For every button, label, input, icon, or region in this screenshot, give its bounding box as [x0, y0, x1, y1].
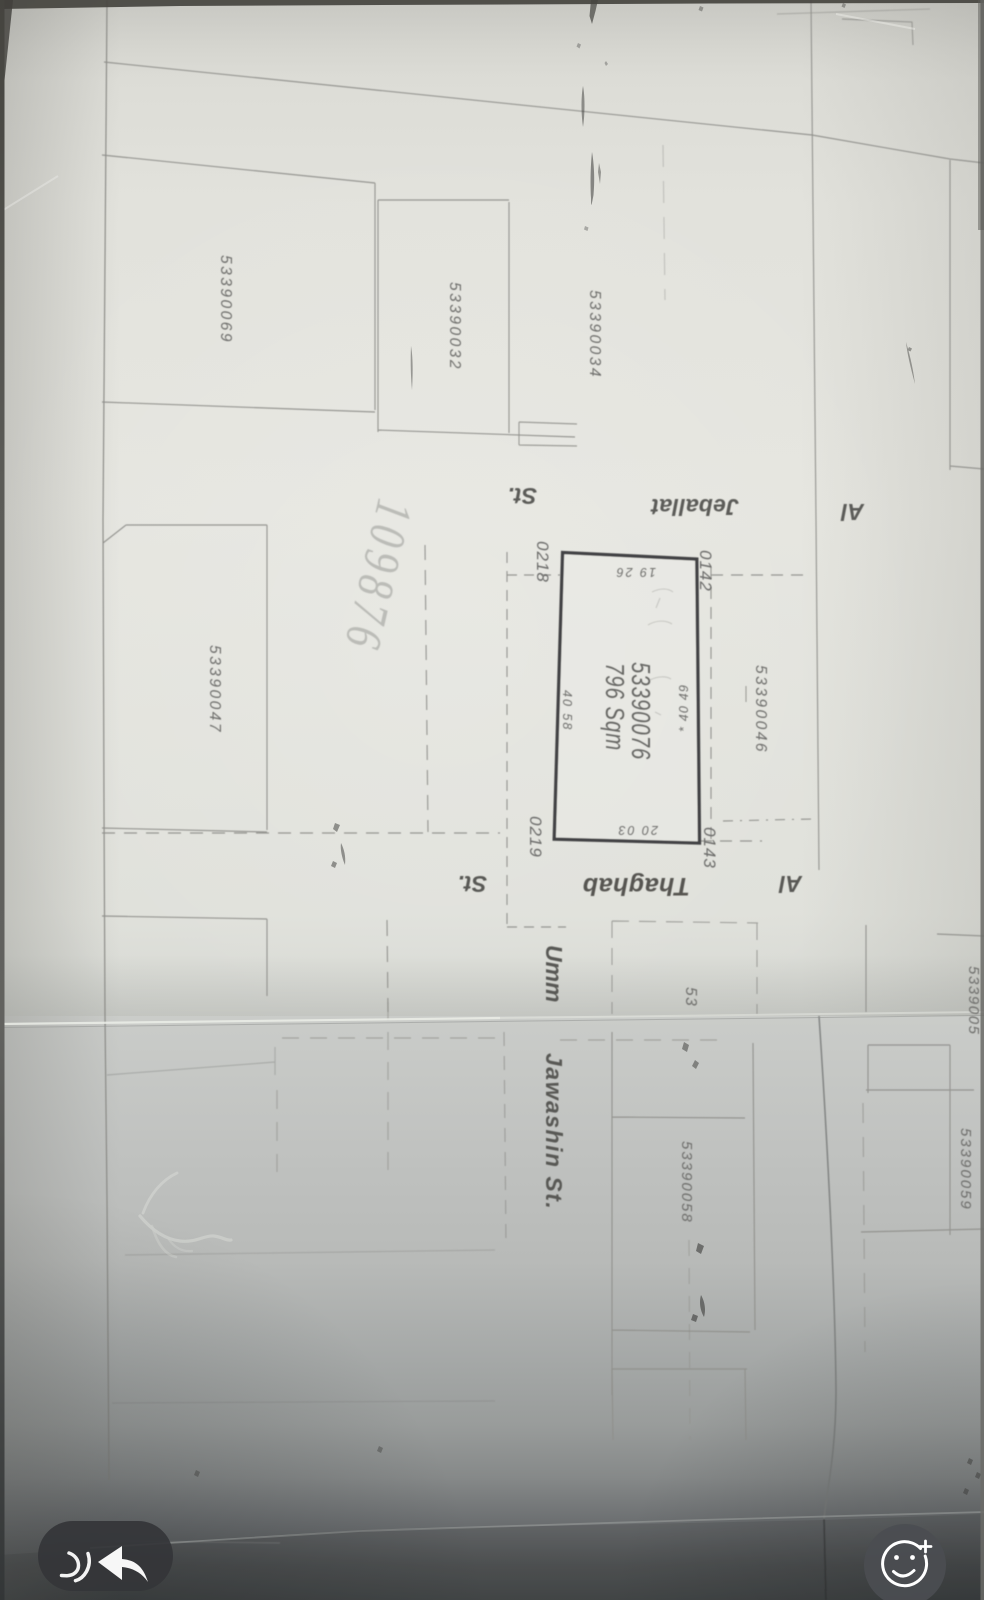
svg-text:Al: Al [778, 871, 803, 897]
svg-text:Jawashin St.: Jawashin St. [541, 1053, 567, 1210]
svg-text:53390059: 53390059 [957, 1128, 974, 1211]
svg-text:St.: St. [508, 483, 537, 509]
svg-text:53390047: 53390047 [206, 645, 223, 734]
svg-text:* 40 49: * 40 49 [677, 684, 691, 732]
svg-text:53390058: 53390058 [678, 1141, 695, 1224]
svg-text:53390076: 53390076 [626, 662, 655, 760]
svg-text:Thaghab: Thaghab [582, 872, 690, 900]
svg-text:53390032: 53390032 [446, 282, 463, 371]
svg-text:Umm: Umm [541, 945, 567, 1003]
svg-text:19 26: 19 26 [615, 565, 656, 579]
svg-text:5339005: 5339005 [965, 966, 982, 1036]
svg-text:St.: St. [458, 871, 487, 897]
svg-text:20 03: 20 03 [617, 823, 659, 837]
svg-text:53390034: 53390034 [586, 290, 603, 379]
svg-text:0143: 0143 [700, 827, 719, 869]
svg-text:53: 53 [682, 987, 699, 1007]
svg-text:Al: Al [840, 499, 865, 525]
svg-text:0219: 0219 [526, 816, 545, 858]
svg-text:53390069: 53390069 [217, 255, 234, 344]
svg-text:53390046: 53390046 [752, 665, 769, 754]
svg-text:40 58: 40 58 [560, 690, 574, 731]
svg-text:796 Sqm: 796 Sqm [600, 663, 629, 751]
svg-text:0218: 0218 [533, 541, 552, 583]
svg-text:0142: 0142 [696, 550, 715, 592]
svg-text:Jeballat: Jeballat [650, 494, 739, 520]
